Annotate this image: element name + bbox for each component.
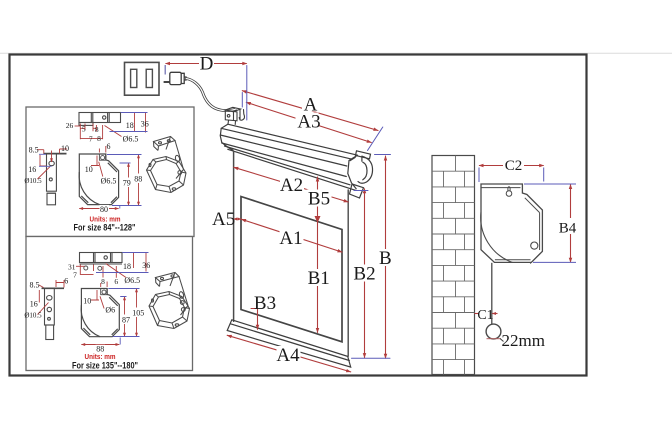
svg-text:Ø10.5: Ø10.5 bbox=[24, 312, 42, 320]
svg-text:8: 8 bbox=[97, 134, 101, 143]
svg-text:B1: B1 bbox=[308, 268, 330, 289]
svg-text:10: 10 bbox=[83, 297, 91, 306]
svg-text:80: 80 bbox=[100, 205, 108, 214]
svg-text:8: 8 bbox=[101, 277, 105, 286]
svg-text:C1: C1 bbox=[477, 308, 493, 323]
svg-text:8.5: 8.5 bbox=[30, 281, 40, 290]
svg-text:Ø10.5: Ø10.5 bbox=[24, 177, 42, 185]
svg-text:16: 16 bbox=[30, 300, 38, 309]
svg-text:Ø6: Ø6 bbox=[105, 305, 115, 314]
svg-text:C2: C2 bbox=[505, 158, 523, 174]
svg-text:105: 105 bbox=[132, 308, 144, 317]
svg-text:A1: A1 bbox=[279, 228, 302, 249]
svg-text:8.5: 8.5 bbox=[29, 146, 39, 155]
svg-text:A4: A4 bbox=[276, 345, 300, 366]
svg-text:10: 10 bbox=[85, 165, 93, 174]
svg-text:D: D bbox=[200, 54, 214, 75]
svg-text:88: 88 bbox=[134, 175, 142, 184]
svg-text:A3: A3 bbox=[297, 112, 320, 133]
svg-text:Ø6.5: Ø6.5 bbox=[101, 177, 117, 186]
svg-text:B5: B5 bbox=[308, 189, 330, 210]
svg-text:B: B bbox=[379, 248, 392, 269]
svg-text:Ø6.5: Ø6.5 bbox=[124, 276, 140, 285]
svg-text:6: 6 bbox=[64, 277, 68, 286]
svg-text:7: 7 bbox=[73, 270, 77, 279]
svg-text:18: 18 bbox=[126, 121, 134, 130]
svg-text:6: 6 bbox=[107, 142, 111, 151]
svg-text:B4: B4 bbox=[559, 221, 577, 237]
svg-text:22mm: 22mm bbox=[502, 331, 545, 350]
svg-text:For size 84"--128": For size 84"--128" bbox=[74, 223, 136, 233]
svg-text:7: 7 bbox=[89, 134, 93, 143]
svg-text:B3: B3 bbox=[254, 293, 276, 314]
svg-text:6: 6 bbox=[114, 277, 118, 286]
svg-text:79: 79 bbox=[123, 179, 131, 188]
svg-text:Ø6.5: Ø6.5 bbox=[123, 134, 139, 143]
svg-text:A5: A5 bbox=[212, 209, 235, 230]
svg-text:26: 26 bbox=[66, 121, 74, 130]
svg-text:18: 18 bbox=[123, 262, 131, 271]
svg-text:87: 87 bbox=[122, 315, 130, 324]
svg-text:36: 36 bbox=[141, 120, 149, 129]
svg-text:B2: B2 bbox=[353, 264, 375, 285]
svg-text:For size 135"--180": For size 135"--180" bbox=[72, 361, 138, 371]
svg-text:10: 10 bbox=[61, 144, 69, 153]
svg-text:5: 5 bbox=[82, 124, 86, 133]
svg-text:16: 16 bbox=[28, 165, 36, 174]
svg-text:A2: A2 bbox=[280, 175, 303, 196]
svg-text:8: 8 bbox=[95, 125, 99, 134]
svg-text:36: 36 bbox=[142, 261, 150, 270]
